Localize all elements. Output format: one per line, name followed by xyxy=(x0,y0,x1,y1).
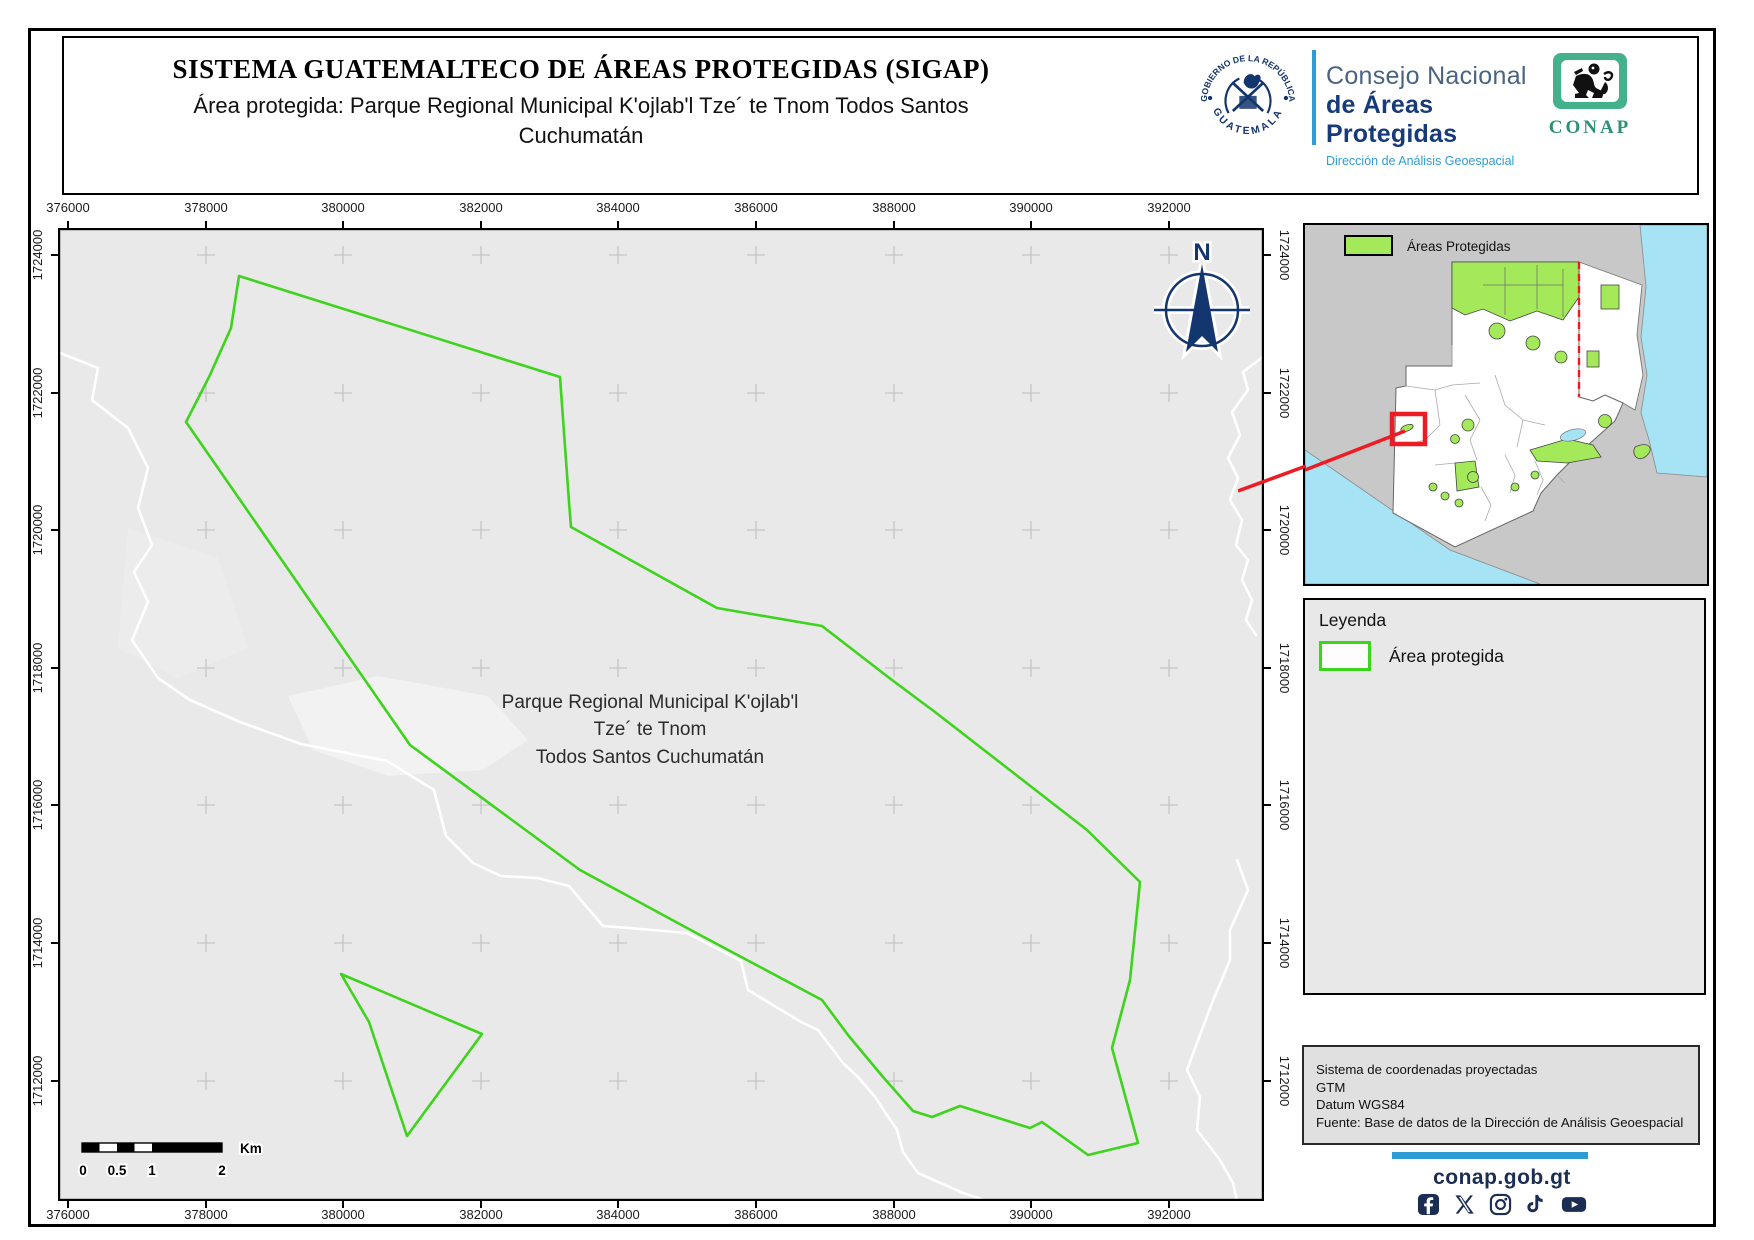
seal-emblem xyxy=(1226,74,1271,113)
social-icons-row xyxy=(1303,1193,1701,1216)
y-axis-tick-left xyxy=(51,1080,58,1082)
x-axis-tick-top xyxy=(755,221,757,228)
footer-accent-bar xyxy=(1392,1152,1588,1159)
x-axis-label-bottom: 384000 xyxy=(578,1207,658,1223)
inset-map: Áreas Protegidas xyxy=(1305,225,1707,584)
x-axis-tick-bottom xyxy=(1030,1201,1032,1208)
scale-unit: Km xyxy=(240,1141,262,1156)
seal-dot-right xyxy=(1284,96,1288,100)
y-axis-label-right: 1712000 xyxy=(1276,1041,1292,1121)
x-axis-tick-top xyxy=(617,221,619,228)
instagram-icon xyxy=(1489,1193,1512,1216)
y-axis-tick-right xyxy=(1264,667,1271,669)
locator-leader-extension xyxy=(1238,455,1306,497)
x-axis-tick-bottom xyxy=(893,1201,895,1208)
legend-item-label: Área protegida xyxy=(1389,646,1504,667)
area-label-line2: Tze´ te Tnom xyxy=(594,719,707,740)
y-axis-tick-left xyxy=(51,392,58,394)
inset-map-panel: Áreas Protegidas xyxy=(1303,223,1709,586)
scale-label-05: 0.5 xyxy=(108,1163,127,1178)
y-axis-tick-left xyxy=(51,667,58,669)
org-name-block: Consejo Nacional de Áreas Protegidas Dir… xyxy=(1326,62,1546,168)
x-axis-tick-bottom xyxy=(480,1201,482,1208)
map-background xyxy=(58,228,1264,1201)
x-axis-label-bottom: 390000 xyxy=(991,1207,1071,1223)
org-name-line1: Consejo Nacional xyxy=(1326,62,1546,91)
scale-label-1: 1 xyxy=(148,1163,156,1178)
y-axis-tick-right xyxy=(1264,392,1271,394)
x-axis-tick-top xyxy=(67,221,69,228)
tiktok-icon xyxy=(1525,1193,1548,1216)
x-axis-tick-top xyxy=(205,221,207,228)
inset-legend-label: Áreas Protegidas xyxy=(1407,239,1511,254)
org-name-line2: de Áreas Protegidas xyxy=(1326,91,1546,149)
y-axis-label-left: 1724000 xyxy=(30,215,46,295)
y-axis-label-left: 1720000 xyxy=(30,490,46,570)
x-axis-label-top: 376000 xyxy=(28,200,108,216)
x-axis-label-bottom: 388000 xyxy=(854,1207,934,1223)
y-axis-tick-right xyxy=(1264,254,1271,256)
conap-logo-text: CONAP xyxy=(1545,117,1635,139)
x-axis-tick-top xyxy=(342,221,344,228)
inset-legend-swatch xyxy=(1345,236,1392,255)
x-twitter-icon xyxy=(1453,1193,1476,1216)
x-axis-tick-bottom xyxy=(67,1201,69,1208)
x-axis-label-top: 386000 xyxy=(716,200,796,216)
y-axis-tick-right xyxy=(1264,942,1271,944)
x-axis-tick-bottom xyxy=(205,1201,207,1208)
title-block: SISTEMA GUATEMALTECO DE ÁREAS PROTEGIDAS… xyxy=(90,54,1072,151)
x-axis-label-top: 390000 xyxy=(991,200,1071,216)
x-axis-label-top: 388000 xyxy=(854,200,934,216)
y-axis-tick-left xyxy=(51,254,58,256)
y-axis-label-left: 1716000 xyxy=(30,765,46,845)
x-axis-label-bottom: 382000 xyxy=(441,1207,521,1223)
north-label: N xyxy=(1193,239,1210,266)
scale-label-2: 2 xyxy=(218,1163,226,1178)
y-axis-label-right: 1722000 xyxy=(1276,353,1292,433)
info-line-projection: Sistema de coordenadas proyectadas xyxy=(1316,1061,1698,1079)
y-axis-tick-left xyxy=(51,804,58,806)
map-document-page: SISTEMA GUATEMALTECO DE ÁREAS PROTEGIDAS… xyxy=(0,0,1754,1240)
legend-item: Área protegida xyxy=(1319,641,1704,671)
x-axis-label-top: 384000 xyxy=(578,200,658,216)
info-line-grid: GTM xyxy=(1316,1079,1698,1097)
belize-shape xyxy=(1579,262,1643,410)
legend-panel: Leyenda Área protegida xyxy=(1303,598,1706,995)
protected-area-swatch xyxy=(1319,641,1371,671)
scale-label-0: 0 xyxy=(79,1163,87,1178)
area-label-line1: Parque Regional Municipal K'ojlab'l xyxy=(502,692,799,713)
y-axis-tick-right xyxy=(1264,1080,1271,1082)
x-axis-tick-top xyxy=(480,221,482,228)
y-axis-label-right: 1724000 xyxy=(1276,215,1292,295)
caribbean-sea xyxy=(1640,225,1707,477)
page-title: SISTEMA GUATEMALTECO DE ÁREAS PROTEGIDAS… xyxy=(90,54,1072,85)
x-axis-tick-bottom xyxy=(755,1201,757,1208)
legend-title: Leyenda xyxy=(1319,610,1704,631)
y-axis-label-right: 1716000 xyxy=(1276,765,1292,845)
y-axis-tick-left xyxy=(51,942,58,944)
government-seal-logo: GOBIERNO DE LA REPÚBLICA GUATEMALA xyxy=(1196,46,1300,150)
x-axis-tick-bottom xyxy=(617,1201,619,1208)
x-axis-tick-top xyxy=(1168,221,1170,228)
x-axis-label-bottom: 378000 xyxy=(166,1207,246,1223)
y-axis-tick-right xyxy=(1264,529,1271,531)
y-axis-label-left: 1714000 xyxy=(30,903,46,983)
info-line-source: Fuente: Base de datos de la Dirección de… xyxy=(1316,1114,1698,1132)
coordinate-info-panel: Sistema de coordenadas proyectadas GTM D… xyxy=(1302,1045,1700,1145)
seal-bottom-text: GUATEMALA xyxy=(1210,106,1286,137)
org-subtitle: Dirección de Análisis Geoespacial xyxy=(1326,154,1546,168)
x-axis-label-bottom: 392000 xyxy=(1129,1207,1209,1223)
y-axis-tick-left xyxy=(51,529,58,531)
header-divider xyxy=(1312,50,1316,145)
facebook-icon xyxy=(1417,1193,1440,1216)
x-axis-label-top: 392000 xyxy=(1129,200,1209,216)
y-axis-label-left: 1722000 xyxy=(30,353,46,433)
info-line-datum: Datum WGS84 xyxy=(1316,1096,1698,1114)
x-axis-label-bottom: 376000 xyxy=(28,1207,108,1223)
main-map: Parque Regional Municipal K'ojlab'l Tze´… xyxy=(58,228,1264,1201)
x-axis-tick-bottom xyxy=(342,1201,344,1208)
conap-logo-icon xyxy=(1552,52,1628,110)
y-axis-tick-right xyxy=(1264,804,1271,806)
website-text: conap.gob.gt xyxy=(1303,1166,1701,1190)
y-axis-label-right: 1714000 xyxy=(1276,903,1292,983)
x-axis-tick-top xyxy=(893,221,895,228)
x-axis-label-top: 378000 xyxy=(166,200,246,216)
y-axis-label-right: 1720000 xyxy=(1276,490,1292,570)
x-axis-tick-top xyxy=(1030,221,1032,228)
seal-dot-left xyxy=(1208,96,1212,100)
y-axis-label-left: 1718000 xyxy=(30,628,46,708)
page-subtitle: Área protegida: Parque Regional Municipa… xyxy=(191,91,971,151)
area-label-line3: Todos Santos Cuchumatán xyxy=(536,747,764,768)
conap-logo: CONAP xyxy=(1545,52,1635,139)
x-axis-label-top: 380000 xyxy=(303,200,383,216)
x-axis-label-top: 382000 xyxy=(441,200,521,216)
youtube-icon xyxy=(1561,1193,1587,1216)
x-axis-label-bottom: 386000 xyxy=(716,1207,796,1223)
y-axis-label-right: 1718000 xyxy=(1276,628,1292,708)
x-axis-tick-bottom xyxy=(1168,1201,1170,1208)
x-axis-label-bottom: 380000 xyxy=(303,1207,383,1223)
y-axis-label-left: 1712000 xyxy=(30,1041,46,1121)
